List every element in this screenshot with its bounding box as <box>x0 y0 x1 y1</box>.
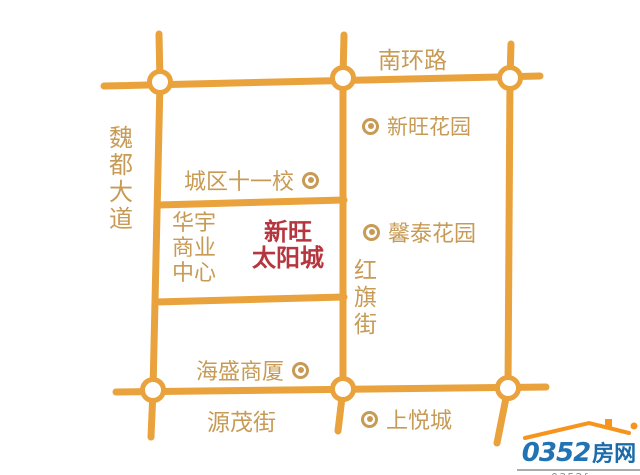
road-label-weidu: 魏都大道 <box>109 125 139 233</box>
road-block-bottom-line <box>156 297 344 302</box>
poi-shangyue-city: 上悦城 <box>361 403 452 435</box>
poi-chengqu-school: 城区十一校 <box>184 164 319 196</box>
poi-marker-icon <box>302 172 319 189</box>
poi-label: 馨泰花园 <box>388 216 476 248</box>
logo-text: 0352 房网 <box>517 436 640 468</box>
intersection-icon <box>150 72 171 93</box>
site-logo: 0352 房网 www.0352fang.com <box>517 418 640 475</box>
poi-marker-icon <box>292 362 309 379</box>
poi-label: 新旺花园 <box>387 111 471 141</box>
location-map: 南环路 魏都大道 红旗街 源茂街 城区十一校 新旺花园 馨泰花园 华宇商业中心 … <box>0 0 640 475</box>
intersection-icon <box>333 379 354 400</box>
intersection-icon <box>500 68 521 89</box>
project-name-line2: 太阳城 <box>240 245 336 271</box>
intersection-icon <box>143 380 164 401</box>
poi-huayu-commercial-center: 华宇商业中心 <box>172 211 222 286</box>
poi-label: 上悦城 <box>386 403 452 435</box>
poi-marker-icon <box>362 118 379 135</box>
road-label-hongqi: 红旗街 <box>354 258 382 339</box>
poi-label: 海盛商厦 <box>196 354 284 386</box>
poi-xintai-garden: 馨泰花园 <box>363 216 476 248</box>
project-name-line1: 新旺 <box>240 219 336 245</box>
intersection-icon <box>498 378 519 399</box>
intersection-icon <box>333 68 354 89</box>
road-hongqi-line <box>338 35 344 431</box>
logo-url: www.0352fang.com <box>517 469 640 475</box>
poi-xinwang-garden: 新旺花园 <box>362 111 471 141</box>
road-label-yuanmao: 源茂街 <box>207 403 276 437</box>
poi-label: 城区十一校 <box>184 164 294 196</box>
logo-suffix: 房网 <box>592 436 636 468</box>
poi-marker-icon <box>361 411 378 428</box>
logo-number: 0352 <box>522 438 590 468</box>
poi-haisheng-building: 海盛商厦 <box>196 354 309 386</box>
project-name-xinwang-sun-city: 新旺 太阳城 <box>240 219 336 271</box>
road-block-top-line <box>158 200 344 205</box>
road-label-nanhuan: 南环路 <box>378 41 447 75</box>
poi-marker-icon <box>363 224 380 241</box>
